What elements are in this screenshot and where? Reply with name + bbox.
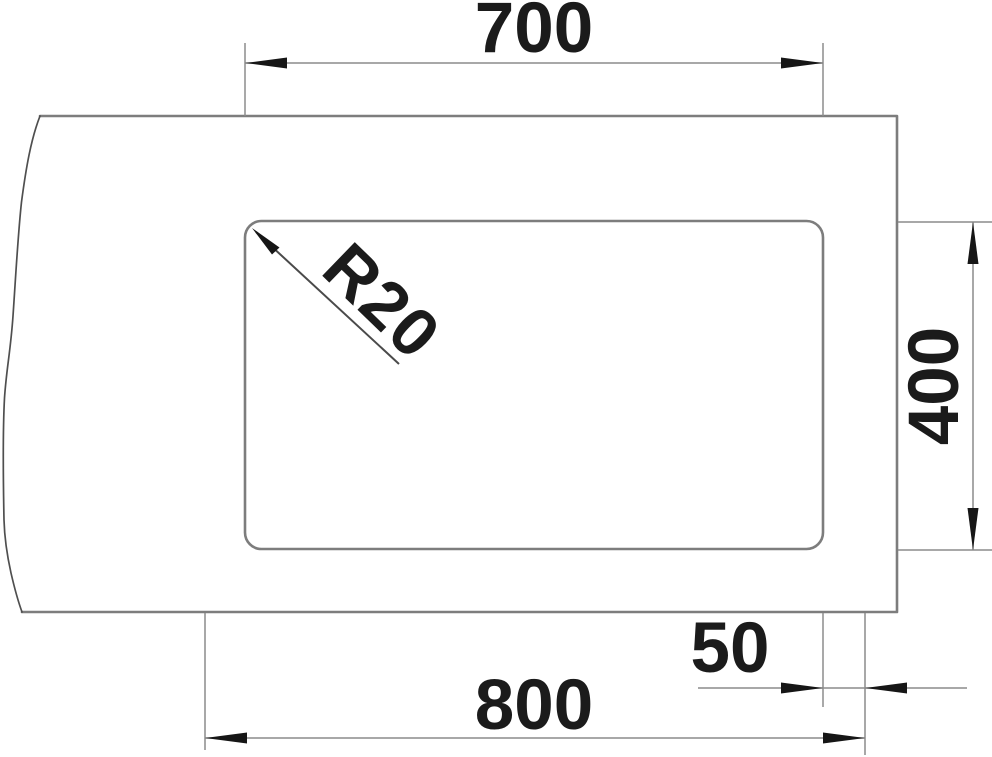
countertop-broken-edge (3, 116, 40, 612)
dimension-label-50: 50 (691, 609, 770, 688)
dimension-700-top: 700 (245, 0, 823, 116)
arrowhead-400-bottom (968, 508, 979, 550)
dimension-label-400: 400 (895, 327, 974, 445)
sink-cutout-dimension-drawing: 700 400 800 50 (0, 0, 992, 757)
arrowhead-r20 (252, 228, 280, 255)
arrowhead-50-right (865, 683, 907, 694)
dimension-label-800: 800 (475, 666, 593, 745)
arrowhead-800-right (823, 733, 865, 744)
dimension-label-700: 700 (475, 0, 593, 68)
radius-label-r20: R20 (309, 229, 456, 374)
dimension-50-offset: 50 (691, 609, 967, 707)
countertop-outline (22, 116, 897, 612)
arrowhead-50-left (781, 683, 823, 694)
arrowhead-700-left (245, 58, 287, 69)
radius-callout-r20: R20 (252, 228, 455, 374)
arrowhead-400-top (968, 222, 979, 264)
technical-drawing-page: 700 400 800 50 (0, 0, 992, 757)
arrowhead-800-left (205, 733, 247, 744)
arrowhead-700-right (781, 58, 823, 69)
dimension-400-right: 400 (895, 222, 992, 550)
